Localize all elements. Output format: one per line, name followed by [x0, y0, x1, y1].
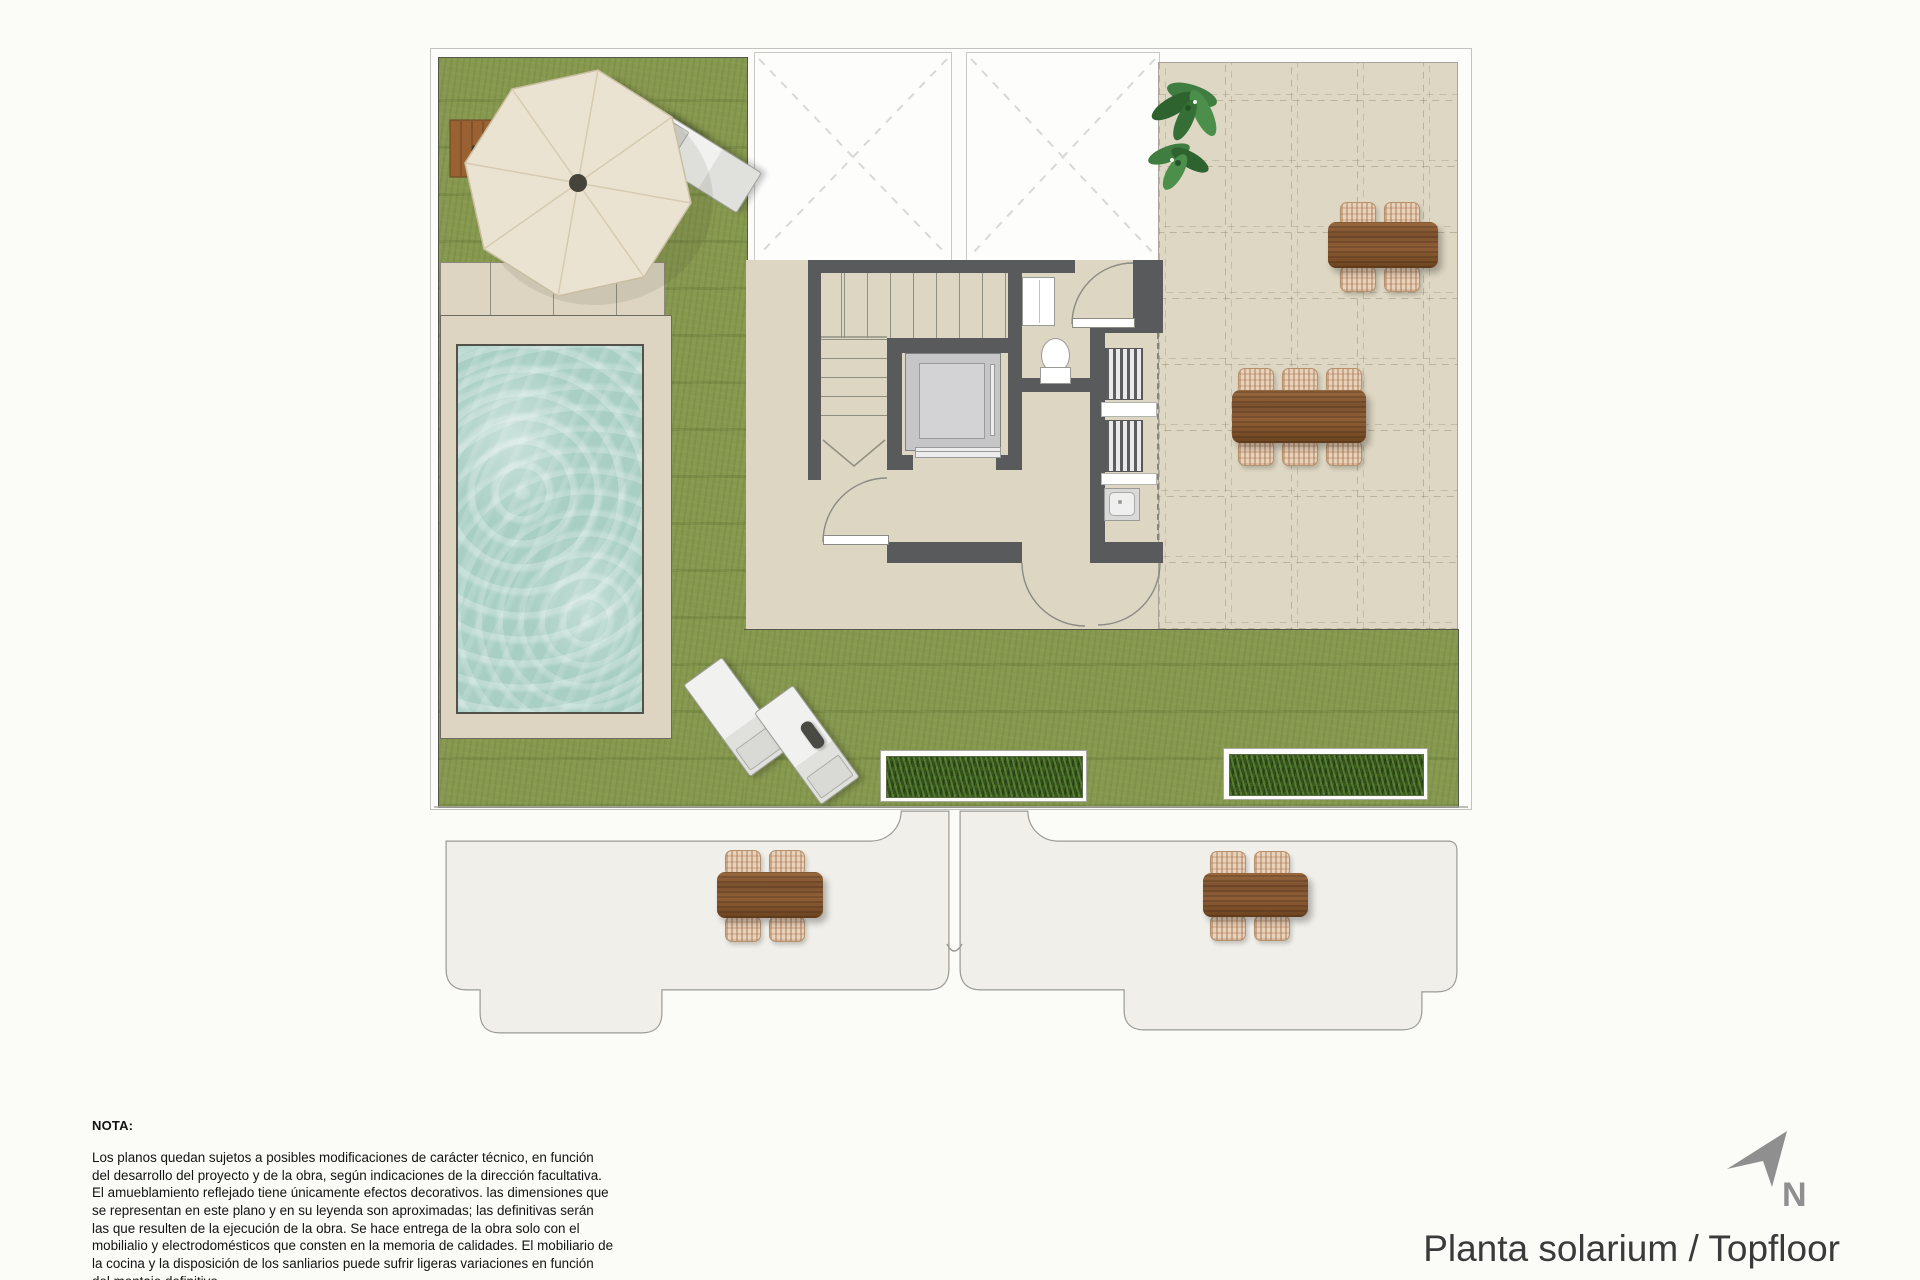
parasol-hub [569, 174, 587, 192]
door-arc [1098, 563, 1160, 625]
planter-plants [1229, 754, 1424, 796]
lower-terrace-right [962, 813, 1455, 1028]
page-title: Planta solarium / Topfloor [1300, 1228, 1840, 1270]
chair [1210, 915, 1246, 941]
lower-terrace-left [448, 813, 947, 1031]
chair [769, 916, 805, 942]
void-skylight-right [966, 52, 1160, 262]
lower-floor-terraces [430, 795, 1475, 1045]
plant [1145, 68, 1260, 193]
note-block: NOTA: Los planos quedan sujetos a posibl… [92, 1118, 614, 1280]
chair [1238, 440, 1274, 466]
dining-table [1328, 222, 1438, 268]
dining-table [1232, 390, 1366, 443]
door-arc [823, 478, 887, 542]
chair [1282, 440, 1318, 466]
chair [1340, 266, 1376, 292]
note-body: Los planos quedan sujetos a posibles mod… [92, 1149, 614, 1280]
void-cross-icon [755, 53, 951, 261]
door-swings [800, 250, 1180, 650]
door-arc [1072, 263, 1133, 324]
dining-table [717, 872, 823, 918]
void-skylight-left [754, 52, 952, 262]
chair [1326, 440, 1362, 466]
pool [456, 344, 644, 714]
chair [1254, 915, 1290, 941]
north-label: N [1782, 1176, 1807, 1215]
chair [1384, 266, 1420, 292]
plan-sheet: NOTA: Los planos quedan sujetos a posibl… [0, 0, 1920, 1280]
north-arrow-icon [1700, 1120, 1830, 1200]
chair [725, 916, 761, 942]
void-cross-icon [967, 53, 1159, 261]
door-arc [1022, 563, 1085, 626]
dining-table [1203, 873, 1308, 917]
plant-leaves [1146, 77, 1222, 193]
note-heading: NOTA: [92, 1118, 614, 1133]
stair-direction-arrow [823, 440, 885, 466]
planter [1223, 748, 1428, 800]
parasol [430, 50, 720, 320]
planter-plants [886, 756, 1083, 798]
